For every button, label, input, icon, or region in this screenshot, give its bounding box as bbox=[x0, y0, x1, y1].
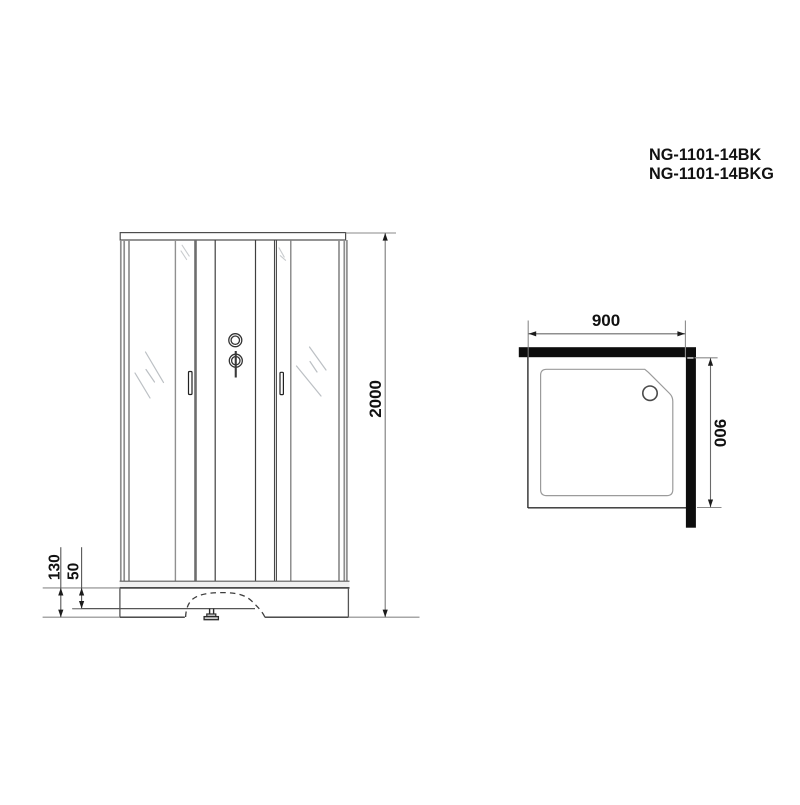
svg-text:50: 50 bbox=[66, 563, 83, 580]
svg-text:900: 900 bbox=[592, 311, 620, 330]
svg-text:900: 900 bbox=[710, 419, 729, 447]
svg-text:2000: 2000 bbox=[366, 380, 385, 418]
svg-text:NG-1101-14BK: NG-1101-14BK bbox=[649, 146, 761, 164]
svg-text:NG-1101-14BKG: NG-1101-14BKG bbox=[649, 165, 774, 183]
svg-text:130: 130 bbox=[47, 554, 64, 580]
